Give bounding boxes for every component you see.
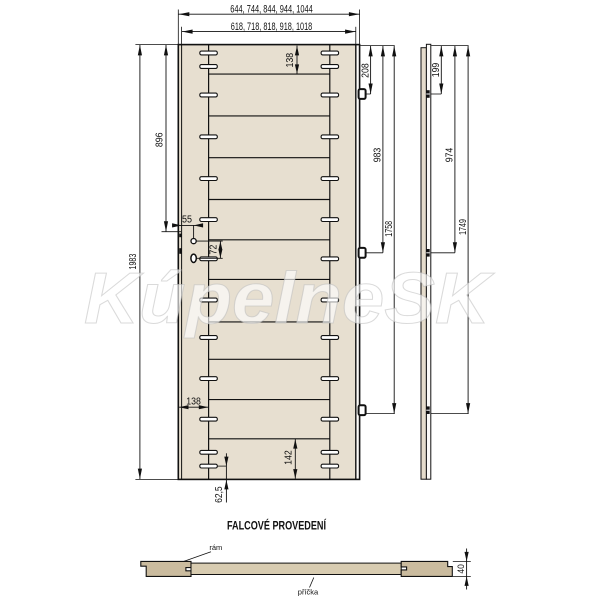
svg-text:příčka: příčka	[298, 588, 319, 597]
svg-text:644, 744, 844, 944, 1044: 644, 744, 844, 944, 1044	[230, 4, 313, 16]
svg-text:40: 40	[456, 564, 466, 574]
svg-text:1749: 1749	[458, 219, 469, 235]
svg-text:FALCOVÉ PROVEDENÍ: FALCOVÉ PROVEDENÍ	[227, 520, 327, 533]
svg-text:1758: 1758	[384, 221, 395, 237]
svg-text:208: 208	[360, 63, 371, 78]
svg-text:983: 983	[373, 147, 384, 162]
svg-text:KúpelneSK: KúpelneSK	[84, 259, 495, 339]
svg-text:138: 138	[186, 396, 201, 407]
svg-text:72: 72	[209, 244, 220, 254]
svg-text:55: 55	[182, 215, 192, 226]
svg-text:rám: rám	[209, 543, 222, 552]
svg-text:138: 138	[285, 53, 296, 68]
svg-text:62,5: 62,5	[214, 486, 225, 503]
svg-text:974: 974	[445, 147, 456, 162]
svg-text:142: 142	[283, 450, 294, 465]
svg-text:618, 718, 818, 918, 1018: 618, 718, 818, 918, 1018	[231, 21, 313, 33]
svg-text:199: 199	[431, 62, 442, 77]
svg-text:896: 896	[154, 132, 165, 147]
